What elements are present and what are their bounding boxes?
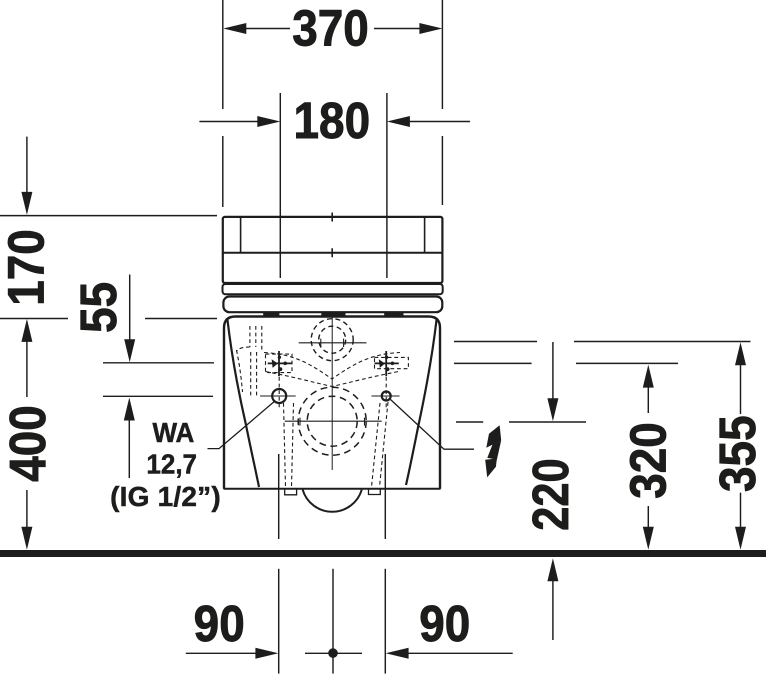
svg-text:WA: WA <box>152 417 194 448</box>
svg-text:220: 220 <box>523 458 580 530</box>
svg-text:180: 180 <box>294 93 371 150</box>
svg-text:400: 400 <box>0 405 57 482</box>
svg-text:320: 320 <box>620 422 677 499</box>
svg-text:90: 90 <box>194 596 245 653</box>
svg-text:12,7: 12,7 <box>146 449 197 480</box>
svg-text:170: 170 <box>0 229 55 306</box>
svg-text:370: 370 <box>292 0 369 57</box>
svg-text:355: 355 <box>710 415 767 492</box>
svg-text:55: 55 <box>71 282 128 333</box>
svg-text:90: 90 <box>419 596 470 653</box>
svg-text:(IG 1/2”): (IG 1/2”) <box>110 481 221 512</box>
